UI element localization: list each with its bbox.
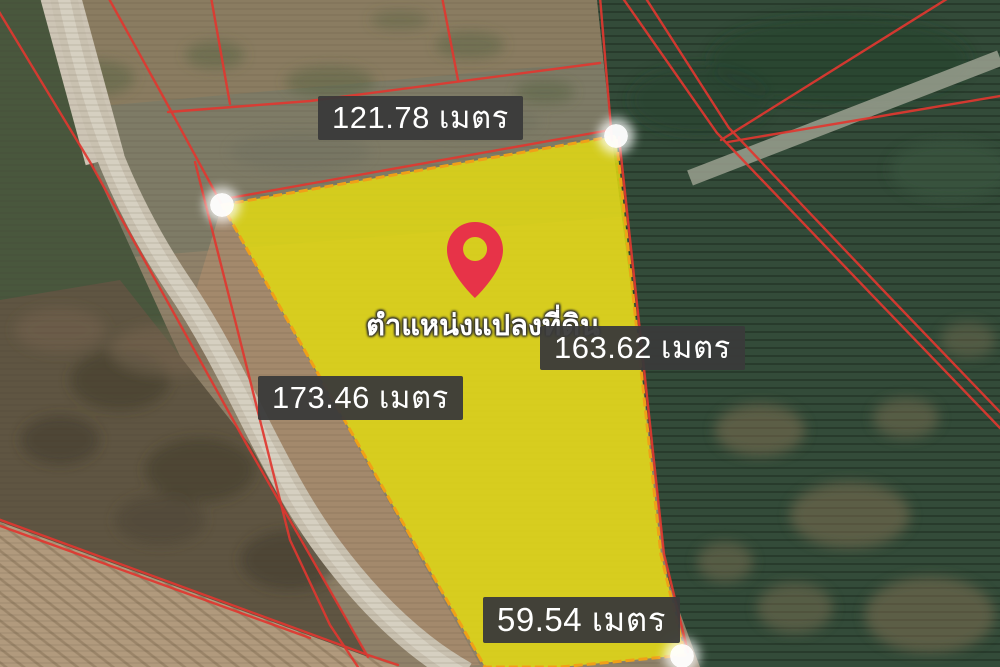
corner-marker-south-icon — [670, 644, 694, 667]
corner-marker-north-icon — [604, 124, 628, 148]
corner-marker-west-icon — [210, 193, 234, 217]
measurement-label-east: 163.62 เมตร — [540, 326, 745, 370]
map-canvas[interactable]: ตำแหน่งแปลงที่ดิน 121.78 เมตร 163.62 เมต… — [0, 0, 1000, 667]
measurement-label-west: 173.46 เมตร — [258, 376, 463, 420]
measurement-label-south: 59.54 เมตร — [483, 597, 680, 643]
location-pin-icon[interactable] — [445, 220, 505, 300]
measurement-label-north: 121.78 เมตร — [318, 96, 523, 140]
